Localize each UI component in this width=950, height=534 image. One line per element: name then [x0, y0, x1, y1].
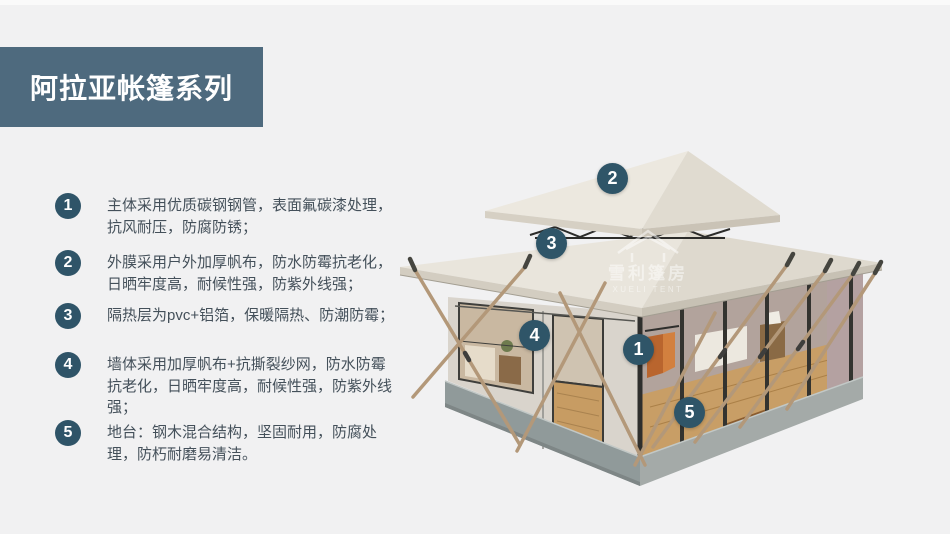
tent-callout-2: 2: [597, 163, 628, 194]
feature-item-4: 4 墙体采用加厚帆布+抗撕裂纱网，防水防霉抗老化，日晒牢度高，耐候性强，防紫外线…: [55, 352, 415, 419]
watermark-cn: 雪利篷房: [608, 263, 688, 283]
tent-callout-5: 5: [674, 397, 705, 428]
feature-text: 外膜采用户外加厚帆布，防水防霉抗老化，日晒牢度高，耐候性强，防紫外线强；: [107, 252, 395, 295]
tent-callout-4: 4: [519, 320, 550, 351]
feature-text: 地台：钢木混合结构，坚固耐用，防腐处理，防朽耐磨易清洁。: [107, 422, 395, 465]
feature-item-2: 2 外膜采用户外加厚帆布，防水防霉抗老化，日晒牢度高，耐候性强，防紫外线强；: [55, 250, 415, 295]
slide: 阿拉亚帐篷系列 1 主体采用优质碳钢钢管，表面氟碳漆处理，抗风耐压，防腐防锈； …: [0, 0, 950, 534]
tent-callout-1: 1: [623, 334, 654, 365]
feature-number-badge: 5: [55, 420, 81, 446]
feature-number-badge: 3: [55, 303, 81, 329]
feature-number-badge: 4: [55, 352, 81, 378]
feature-number-badge: 2: [55, 250, 81, 276]
title-ribbon: 阿拉亚帐篷系列: [0, 47, 263, 127]
feature-text: 主体采用优质碳钢钢管，表面氟碳漆处理，抗风耐压，防腐防锈；: [107, 195, 395, 238]
tent-callout-3: 3: [536, 228, 567, 259]
feature-text: 隔热层为pvc+铝箔，保暖隔热、防潮防霉；: [107, 305, 395, 327]
page-title: 阿拉亚帐篷系列: [30, 67, 233, 107]
feature-item-1: 1 主体采用优质碳钢钢管，表面氟碳漆处理，抗风耐压，防腐防锈；: [55, 193, 415, 238]
feature-text: 墙体采用加厚帆布+抗撕裂纱网，防水防霉抗老化，日晒牢度高，耐候性强，防紫外线强；: [107, 354, 395, 419]
tent-illustration: 雪利篷房 XUELI TENT: [395, 145, 895, 495]
top-strip: [0, 0, 950, 5]
feature-number-badge: 1: [55, 193, 81, 219]
tent-top-roof: [485, 151, 780, 237]
watermark-en: XUELI TENT: [612, 285, 683, 294]
feature-item-5: 5 地台：钢木混合结构，坚固耐用，防腐处理，防朽耐磨易清洁。: [55, 420, 415, 465]
feature-item-3: 3 隔热层为pvc+铝箔，保暖隔热、防潮防霉；: [55, 303, 415, 329]
